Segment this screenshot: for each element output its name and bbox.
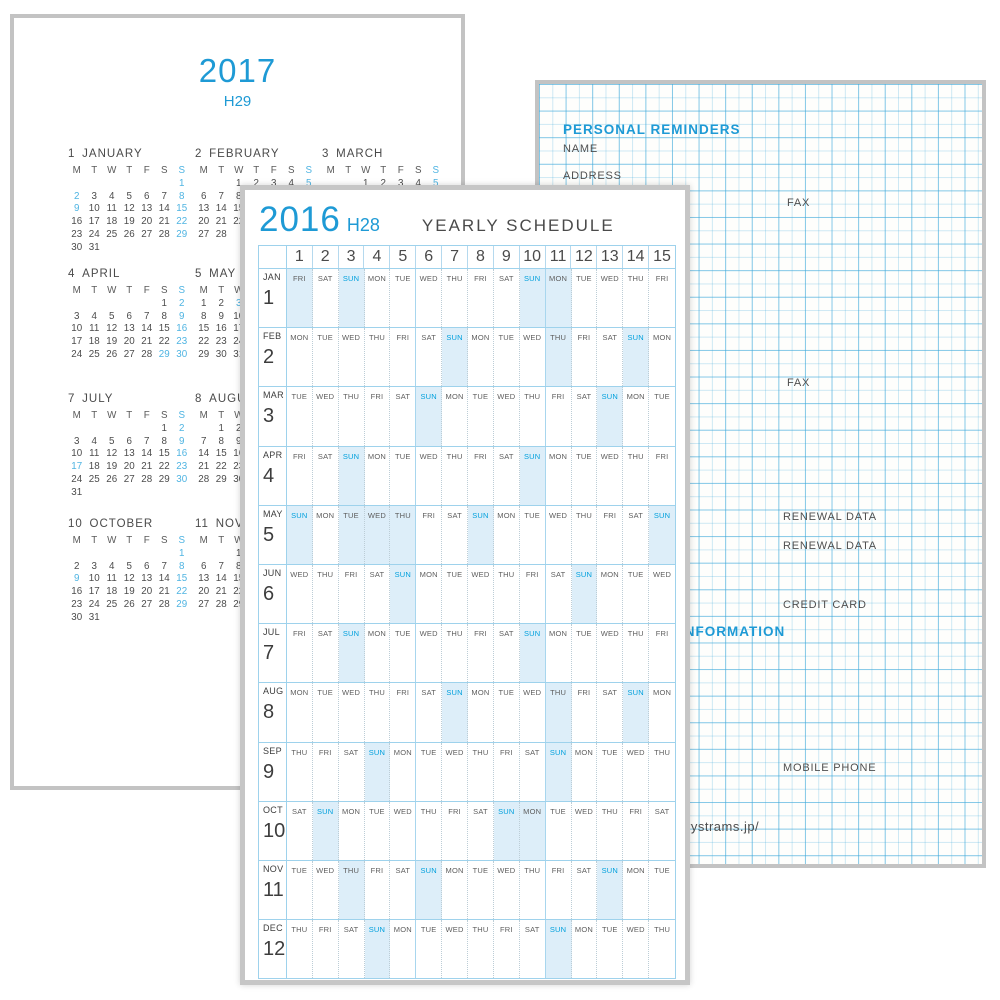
week-row: 12 — [68, 423, 194, 436]
weekday-abbreviation: TUE — [494, 688, 519, 697]
day-number: 20 — [121, 336, 139, 349]
weekday-abbreviation: SUN — [623, 333, 648, 342]
schedule-day-cell: FRI — [390, 328, 416, 386]
day-number — [156, 612, 174, 625]
month-cell: APR4 — [259, 447, 287, 505]
month-number: 11 — [195, 518, 209, 530]
weekday-abbreviation: THU — [520, 866, 545, 875]
weekday-abbreviation: WED — [494, 866, 519, 875]
month-abbreviation: AUG — [263, 686, 286, 696]
day-number: 5 — [103, 436, 121, 449]
weekday-abbreviation: SUN — [623, 688, 648, 697]
weekday-abbreviation: TUE — [416, 748, 441, 757]
weekday-abbreviation: MON — [520, 807, 545, 816]
schedule-day-cell: SUN — [546, 920, 572, 978]
schedule-day-cell: TUE — [494, 328, 520, 386]
day-number — [121, 178, 139, 191]
day-number: 15 — [195, 323, 213, 336]
day-number — [103, 423, 121, 436]
month-name: FEBRUARY — [202, 148, 279, 160]
weekday-abbreviation: SUN — [416, 392, 441, 401]
day-number: 11 — [103, 203, 121, 216]
day-number: 13 — [195, 203, 213, 216]
mini-calendar-month: 7 JULYMTWTFSS123456789101112131415161718… — [68, 393, 194, 500]
weekday-abbreviation: THU — [597, 807, 622, 816]
schedule-day-cell: THU — [287, 743, 313, 801]
weekday-header: T — [340, 165, 358, 178]
weekday-header: W — [103, 165, 121, 178]
schedule-day-cell: SAT — [390, 387, 416, 445]
weekday-abbreviation: WED — [313, 866, 338, 875]
day-number: 11 — [86, 448, 104, 461]
schedule-day-cell: MON — [649, 328, 675, 386]
weekday-abbreviation: THU — [339, 866, 364, 875]
weekday-abbreviation: WED — [339, 333, 364, 342]
schedule-day-cell: THU — [494, 565, 520, 623]
day-number: 3 — [68, 436, 86, 449]
schedule-day-cell: FRI — [494, 743, 520, 801]
weekday-abbreviation: SUN — [494, 807, 519, 816]
month-abbreviation: JUN — [263, 568, 286, 578]
day-number: 19 — [121, 586, 139, 599]
day-number: 5 — [121, 191, 139, 204]
weekday-abbreviation: WED — [597, 452, 622, 461]
weekday-header: S — [173, 165, 191, 178]
day-number: 5 — [103, 311, 121, 324]
weekday-abbreviation: THU — [546, 688, 571, 697]
weekday-header: W — [357, 165, 375, 178]
day-number: 23 — [173, 461, 191, 474]
month-title: 2 FEBRUARY — [195, 148, 321, 160]
weekday-header: T — [213, 410, 231, 423]
weekday-abbreviation: MON — [287, 333, 312, 342]
month-cell: MAY5 — [259, 506, 287, 564]
day-number: 18 — [86, 461, 104, 474]
schedule-day-cell: FRI — [468, 624, 494, 682]
day-number: 28 — [213, 599, 231, 612]
day-number: 8 — [195, 311, 213, 324]
day-number: 1 — [156, 423, 174, 436]
day-number: 27 — [195, 229, 213, 242]
month-abbreviation: JAN — [263, 272, 286, 282]
day-number: 17 — [68, 336, 86, 349]
schedule-header: 2016H28YEARLY SCHEDULE — [259, 200, 615, 240]
schedule-day-cell: FRI — [597, 506, 623, 564]
weekday-header: W — [230, 165, 248, 178]
weekday-header: T — [121, 285, 139, 298]
weekday-header: T — [86, 535, 104, 548]
day-number: 12 — [121, 203, 139, 216]
schedule-day-cell: FRI — [546, 861, 572, 919]
day-number: 9 — [68, 203, 86, 216]
weekday-abbreviation: WED — [339, 688, 364, 697]
day-number: 5 — [121, 561, 139, 574]
day-number: 30 — [213, 349, 231, 362]
weekday-abbreviation: SUN — [365, 925, 390, 934]
week-row: 23242526272829 — [68, 229, 194, 242]
weekday-abbreviation: FRI — [442, 807, 467, 816]
schedule-day-cell: SUN — [365, 743, 391, 801]
schedule-day-cell: SAT — [339, 743, 365, 801]
day-number — [86, 548, 104, 561]
month-number: 7 — [263, 642, 286, 665]
month-cell: MAR3 — [259, 387, 287, 445]
weekday-abbreviation: TUE — [597, 925, 622, 934]
schedule-day-cell: TUE — [597, 920, 623, 978]
weekday-abbreviation: FRI — [313, 925, 338, 934]
weekday-header: T — [213, 535, 231, 548]
day-number: 12 — [103, 323, 121, 336]
weekday-header: T — [121, 535, 139, 548]
day-number: 10 — [86, 203, 104, 216]
schedule-day-cell: WED — [442, 920, 468, 978]
weekday-abbreviation: SAT — [313, 629, 338, 638]
day-number: 17 — [86, 216, 104, 229]
day-number: 21 — [156, 216, 174, 229]
schedule-day-cell: WED — [313, 861, 339, 919]
weekday-abbreviation: TUE — [546, 807, 571, 816]
weekday-abbreviation: SUN — [287, 511, 312, 520]
day-number: 30 — [173, 474, 191, 487]
week-row: 24252627282930 — [68, 349, 194, 362]
day-number: 27 — [138, 599, 156, 612]
weekday-abbreviation: MON — [623, 392, 648, 401]
schedule-day-cell: TUE — [494, 683, 520, 741]
weekday-abbreviation: FRI — [365, 866, 390, 875]
weekday-abbreviation: FRI — [468, 274, 493, 283]
month-name: MAY — [202, 268, 236, 280]
schedule-day-cell: THU — [365, 328, 391, 386]
day-number: 15 — [156, 448, 174, 461]
schedule-day-cell: FRI — [442, 802, 468, 860]
yearly-schedule-page: 2016H28YEARLY SCHEDULE 12345678910111213… — [240, 185, 690, 985]
schedule-day-cell: MON — [390, 920, 416, 978]
schedule-day-cell: TUE — [468, 387, 494, 445]
schedule-day-cell: WED — [520, 683, 546, 741]
schedule-day-cell: WED — [313, 387, 339, 445]
schedule-day-cell: MON — [597, 565, 623, 623]
weekday-abbreviation: TUE — [416, 925, 441, 934]
schedule-day-cell: MON — [572, 920, 598, 978]
day-number: 21 — [213, 216, 231, 229]
schedule-day-cell: MON — [442, 387, 468, 445]
weekday-abbreviation: FRI — [287, 274, 312, 283]
weekday-abbreviation: THU — [649, 925, 675, 934]
renewal-data-label: RENEWAL DATA — [783, 540, 877, 552]
day-number — [68, 178, 86, 191]
schedule-day-cell: SAT — [572, 861, 598, 919]
schedule-day-cell: TUE — [287, 387, 313, 445]
month-abbreviation: SEP — [263, 746, 286, 756]
day-number: 21 — [138, 336, 156, 349]
weekday-header: F — [392, 165, 410, 178]
schedule-day-cell: FRI — [339, 565, 365, 623]
month-cell: DEC12 — [259, 920, 287, 978]
mini-calendar-month: 1 JANUARYMTWTFSS123456789101112131415161… — [68, 148, 194, 255]
schedule-day-cell: SUN — [287, 506, 313, 564]
schedule-day-cell: THU — [623, 269, 649, 327]
day-number: 14 — [213, 203, 231, 216]
day-number-header: 2 — [313, 246, 339, 268]
weekday-abbreviation: SAT — [546, 570, 571, 579]
schedule-day-cell: TUE — [339, 506, 365, 564]
day-number: 20 — [195, 586, 213, 599]
weekday-header: T — [248, 165, 266, 178]
era-label: H28 — [347, 215, 380, 235]
month-abbreviation: MAY — [263, 509, 286, 519]
schedule-day-cell: SAT — [494, 624, 520, 682]
weekday-abbreviation: SUN — [339, 274, 364, 283]
schedule-day-cell: MON — [546, 447, 572, 505]
day-number: 8 — [156, 311, 174, 324]
weekday-abbreviation: MON — [365, 452, 390, 461]
weekday-abbreviation: SAT — [520, 925, 545, 934]
day-number — [138, 548, 156, 561]
month-number: 1 — [263, 287, 286, 310]
schedule-day-cell: SUN — [597, 861, 623, 919]
day-number: 24 — [86, 599, 104, 612]
weekday-header: S — [173, 535, 191, 548]
weekday-abbreviation: TUE — [313, 688, 338, 697]
month-name: APRIL — [75, 268, 120, 280]
day-number: 6 — [138, 191, 156, 204]
weekday-abbreviation: WED — [649, 570, 675, 579]
schedule-day-cell: SUN — [365, 920, 391, 978]
weekday-header: F — [138, 285, 156, 298]
day-number: 26 — [103, 474, 121, 487]
weekday-abbreviation: THU — [442, 274, 467, 283]
day-number: 1 — [195, 298, 213, 311]
day-number: 8 — [213, 436, 231, 449]
month-number: 11 — [263, 879, 286, 902]
schedule-day-cell: WED — [623, 743, 649, 801]
weekday-abbreviation: THU — [442, 629, 467, 638]
day-number: 9 — [213, 311, 231, 324]
day-number — [195, 178, 213, 191]
day-number — [86, 298, 104, 311]
weekday-abbreviation: TUE — [572, 629, 597, 638]
day-number: 16 — [213, 323, 231, 336]
month-number: 4 — [263, 465, 286, 488]
weekday-abbreviation: SAT — [416, 333, 441, 342]
schedule-day-cell: FRI — [649, 447, 675, 505]
month-schedule-row: MAR3TUEWEDTHUFRISATSUNMONTUEWEDTHUFRISAT… — [259, 387, 675, 446]
schedule-day-cell: SUN — [442, 328, 468, 386]
day-number — [103, 242, 121, 255]
month-schedule-row: DEC12THUFRISATSUNMONTUEWEDTHUFRISATSUNMO… — [259, 920, 675, 978]
day-number: 28 — [156, 599, 174, 612]
weekday-abbreviation: MON — [365, 629, 390, 638]
day-number: 25 — [103, 599, 121, 612]
schedule-day-cell: WED — [339, 328, 365, 386]
weekday-abbreviation: WED — [416, 629, 441, 638]
day-number: 15 — [213, 448, 231, 461]
day-number: 14 — [213, 573, 231, 586]
schedule-day-cell: SUN — [339, 447, 365, 505]
day-number: 7 — [138, 436, 156, 449]
day-number: 15 — [173, 203, 191, 216]
day-number-header-row: 123456789101112131415 — [259, 246, 675, 269]
schedule-day-cell: MON — [468, 328, 494, 386]
fax-label: FAX — [787, 377, 810, 389]
schedule-day-cell: SAT — [494, 269, 520, 327]
credit-card-label: CREDIT CARD — [783, 599, 867, 611]
month-schedule-row: JAN1FRISATSUNMONTUEWEDTHUFRISATSUNMONTUE… — [259, 269, 675, 328]
weekday-abbreviation: TUE — [468, 866, 493, 875]
schedule-day-cell: FRI — [287, 447, 313, 505]
schedule-day-cell: SAT — [313, 269, 339, 327]
day-number: 22 — [213, 461, 231, 474]
day-number: 22 — [156, 461, 174, 474]
schedule-day-cell: FRI — [287, 624, 313, 682]
day-number: 24 — [86, 229, 104, 242]
month-number: 6 — [263, 583, 286, 606]
weekday-abbreviation: FRI — [468, 629, 493, 638]
schedule-day-cell: WED — [597, 269, 623, 327]
schedule-day-cell: SUN — [442, 683, 468, 741]
day-number — [86, 423, 104, 436]
schedule-day-cell: FRI — [623, 802, 649, 860]
day-number: 6 — [121, 311, 139, 324]
weekday-abbreviation: TUE — [287, 866, 312, 875]
weekday-abbreviation: MON — [649, 688, 675, 697]
day-number: 31 — [68, 487, 86, 500]
day-number — [121, 612, 139, 625]
schedule-day-cell: SAT — [390, 861, 416, 919]
month-schedule-row: JUN6WEDTHUFRISATSUNMONTUEWEDTHUFRISATSUN… — [259, 565, 675, 624]
schedule-day-cell: SAT — [339, 920, 365, 978]
weekday-abbreviation: WED — [468, 570, 493, 579]
weekday-abbreviation: FRI — [313, 748, 338, 757]
schedule-day-cell: SAT — [442, 506, 468, 564]
weekday-header: F — [138, 535, 156, 548]
day-number: 27 — [121, 474, 139, 487]
weekday-abbreviation: THU — [520, 392, 545, 401]
week-row: 23242526272829 — [68, 599, 194, 612]
day-number: 9 — [68, 573, 86, 586]
schedule-day-cell: THU — [623, 624, 649, 682]
schedule-day-cell: MON — [313, 506, 339, 564]
era-label: H29 — [14, 93, 461, 110]
day-number: 21 — [195, 461, 213, 474]
weekday-abbreviation: WED — [416, 452, 441, 461]
weekday-abbreviation: MON — [572, 925, 597, 934]
weekday-abbreviation: SAT — [468, 807, 493, 816]
day-number: 15 — [173, 573, 191, 586]
weekday-abbreviation: TUE — [390, 452, 415, 461]
weekday-header: S — [410, 165, 428, 178]
day-number: 3 — [86, 561, 104, 574]
schedule-day-cell: FRI — [390, 683, 416, 741]
schedule-day-cell: TUE — [520, 506, 546, 564]
day-number: 18 — [86, 336, 104, 349]
month-schedule-row: FEB2MONTUEWEDTHUFRISATSUNMONTUEWEDTHUFRI… — [259, 328, 675, 387]
weekday-header: M — [195, 165, 213, 178]
weekday-abbreviation: THU — [365, 688, 390, 697]
schedule-day-cell: FRI — [313, 920, 339, 978]
weekday-header: W — [103, 535, 121, 548]
day-number: 2 — [173, 423, 191, 436]
weekday-abbreviation: SUN — [520, 452, 545, 461]
day-number: 13 — [195, 573, 213, 586]
month-number: 8 — [263, 701, 286, 724]
schedule-day-cell: THU — [442, 624, 468, 682]
day-number: 23 — [68, 599, 86, 612]
month-schedule-row: AUG8MONTUEWEDTHUFRISATSUNMONTUEWEDTHUFRI… — [259, 683, 675, 742]
schedule-day-cell: WED — [494, 387, 520, 445]
weekday-header: S — [427, 165, 445, 178]
weekday-header: M — [195, 535, 213, 548]
weekday-abbreviation: SAT — [390, 392, 415, 401]
schedule-day-cell: THU — [442, 447, 468, 505]
weekday-header: S — [173, 285, 191, 298]
schedule-day-cell: SAT — [313, 624, 339, 682]
day-number: 22 — [173, 216, 191, 229]
weekday-abbreviation: SUN — [546, 748, 571, 757]
month-abbreviation: FEB — [263, 331, 286, 341]
weekday-abbreviation: TUE — [390, 274, 415, 283]
day-number: 19 — [103, 336, 121, 349]
month-cell: SEP9 — [259, 743, 287, 801]
weekday-header: T — [121, 165, 139, 178]
schedule-day-cell: MON — [649, 683, 675, 741]
page-title: YEARLY SCHEDULE — [422, 216, 615, 235]
day-number: 3 — [68, 311, 86, 324]
website-url: rystrams.jp/ — [686, 819, 759, 834]
schedule-day-cell: THU — [546, 328, 572, 386]
month-abbreviation: APR — [263, 450, 286, 460]
schedule-day-cell: SUN — [520, 624, 546, 682]
day-number: 24 — [68, 474, 86, 487]
schedule-day-cell: MON — [546, 269, 572, 327]
weekday-abbreviation: SAT — [442, 511, 467, 520]
schedule-day-cell: TUE — [649, 861, 675, 919]
planner-pages-photo: 2017 H29 1 JANUARYMTWTFSS123456789101112… — [0, 0, 1000, 1000]
weekday-abbreviation: MON — [287, 688, 312, 697]
weekday-abbreviation: MON — [416, 570, 441, 579]
day-number-header: 12 — [571, 246, 597, 268]
schedule-day-cell: TUE — [365, 802, 391, 860]
weekday-header: S — [156, 165, 174, 178]
day-number: 1 — [213, 423, 231, 436]
schedule-day-cell: SAT — [546, 565, 572, 623]
schedule-day-cell: SAT — [520, 743, 546, 801]
weekday-abbreviation: WED — [390, 807, 415, 816]
personal-reminders-heading: PERSONAL REMINDERS — [563, 122, 741, 137]
week-row: 10111213141516 — [68, 448, 194, 461]
day-number: 29 — [213, 474, 231, 487]
week-row: 9101112131415 — [68, 573, 194, 586]
weekday-abbreviation: WED — [494, 392, 519, 401]
month-number: 12 — [263, 938, 286, 961]
weekday-abbreviation: TUE — [649, 866, 675, 875]
schedule-day-cell: FRI — [572, 328, 598, 386]
day-number: 3 — [86, 191, 104, 204]
weekday-abbreviation: SUN — [597, 866, 622, 875]
day-number: 18 — [103, 586, 121, 599]
schedule-day-cell: MON — [365, 624, 391, 682]
schedule-day-cell: SAT — [520, 920, 546, 978]
day-number-header: 9 — [494, 246, 520, 268]
weekday-abbreviation: WED — [597, 629, 622, 638]
day-number: 27 — [138, 229, 156, 242]
renewal-data-label: RENEWAL DATA — [783, 511, 877, 523]
day-number: 4 — [86, 436, 104, 449]
weekday-abbreviation: FRI — [649, 452, 675, 461]
day-number: 19 — [103, 461, 121, 474]
schedule-day-cell: TUE — [623, 565, 649, 623]
schedule-day-cell: MON — [494, 506, 520, 564]
